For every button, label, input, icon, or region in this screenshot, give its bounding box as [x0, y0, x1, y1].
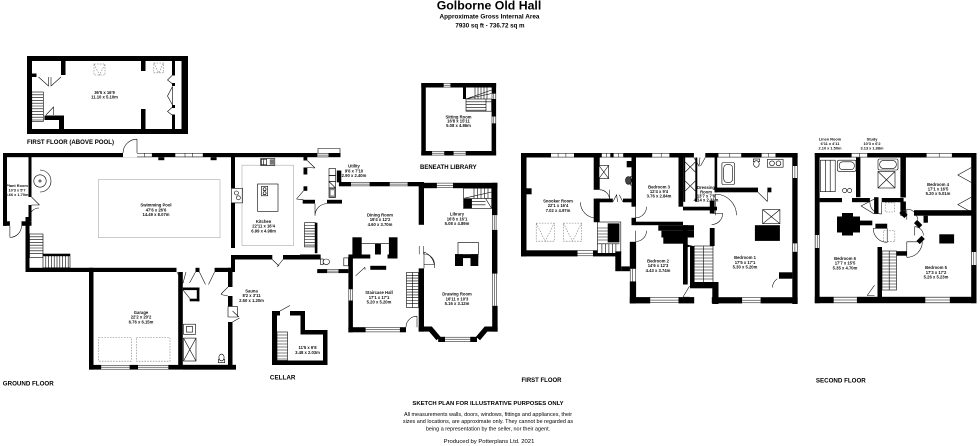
svg-text:5.08 x 4.89m: 5.08 x 4.89m — [445, 221, 470, 226]
svg-text:6.76 x 6.15m: 6.76 x 6.15m — [129, 319, 154, 324]
svg-text:5.30 x 5.20m: 5.30 x 5.20m — [733, 265, 758, 270]
svg-text:6.99 x 4.98m: 6.99 x 4.98m — [251, 228, 276, 233]
svg-text:14.49 x 8.07m: 14.49 x 8.07m — [142, 212, 169, 217]
svg-text:4.14 x 2.33m: 4.14 x 2.33m — [694, 198, 719, 203]
svg-text:11.10 x 5.10m: 11.10 x 5.10m — [91, 95, 118, 100]
svg-text:7.02 x 4.97m: 7.02 x 4.97m — [546, 208, 571, 213]
svg-text:4.66 x 1.70m: 4.66 x 1.70m — [6, 192, 29, 197]
svg-text:2.90 x 2.40m: 2.90 x 2.40m — [342, 173, 367, 178]
svg-text:2.10 x 1.50m: 2.10 x 1.50m — [819, 145, 842, 150]
svg-text:FIRST FLOOR: FIRST FLOOR — [522, 378, 563, 384]
svg-text:7930 sq ft - 736.72 sq m: 7930 sq ft - 736.72 sq m — [455, 22, 525, 29]
svg-text:5.08 x 4.86m: 5.08 x 4.86m — [446, 123, 471, 128]
svg-text:4.43 x 3.74m: 4.43 x 3.74m — [646, 268, 671, 273]
svg-text:5.20 x 5.20m: 5.20 x 5.20m — [367, 300, 392, 305]
svg-text:5.35 x 4.70m: 5.35 x 4.70m — [833, 265, 858, 270]
svg-text:5.26 x 5.23m: 5.26 x 5.23m — [924, 275, 949, 280]
svg-text:GROUND FLOOR: GROUND FLOOR — [3, 381, 54, 388]
svg-text:SECOND FLOOR: SECOND FLOOR — [816, 378, 866, 385]
svg-text:BENEATH LIBRARY: BENEATH LIBRARY — [420, 165, 477, 171]
svg-text:being a representation by the: being a representation by the seller, no… — [426, 427, 551, 433]
svg-text:FIRST FLOOR (ABOVE POOL): FIRST FLOOR (ABOVE POOL) — [27, 139, 114, 146]
svg-text:3.48 x 2.03m: 3.48 x 2.03m — [295, 350, 320, 355]
svg-text:Approximate Gross Internal Are: Approximate Gross Internal Area — [440, 14, 540, 21]
svg-text:4.60 x 3.70m: 4.60 x 3.70m — [368, 222, 393, 227]
svg-text:CELLAR: CELLAR — [270, 375, 296, 382]
svg-text:2.50 x 1.20m: 2.50 x 1.20m — [239, 298, 264, 303]
svg-text:Golborne Old Hall: Golborne Old Hall — [437, 0, 542, 12]
svg-text:5.16 x 3.12m: 5.16 x 3.12m — [445, 301, 470, 306]
svg-text:SKETCH PLAN FOR ILLUSTRATIVE P: SKETCH PLAN FOR ILLUSTRATIVE PURPOSES ON… — [412, 401, 563, 407]
svg-text:All measurements walls, doors,: All measurements walls, doors, windows, … — [404, 412, 572, 418]
svg-text:3.76 x 2.84m: 3.76 x 2.84m — [647, 194, 672, 199]
svg-text:sizes and locations, are appro: sizes and locations, are approximate onl… — [403, 419, 574, 425]
svg-text:Produced by Potterplans Ltd. 2: Produced by Potterplans Ltd. 2021 — [444, 439, 535, 445]
svg-text:5.20 x 5.01m: 5.20 x 5.01m — [926, 191, 951, 196]
svg-text:3.13 x 1.88m: 3.13 x 1.88m — [861, 145, 884, 150]
